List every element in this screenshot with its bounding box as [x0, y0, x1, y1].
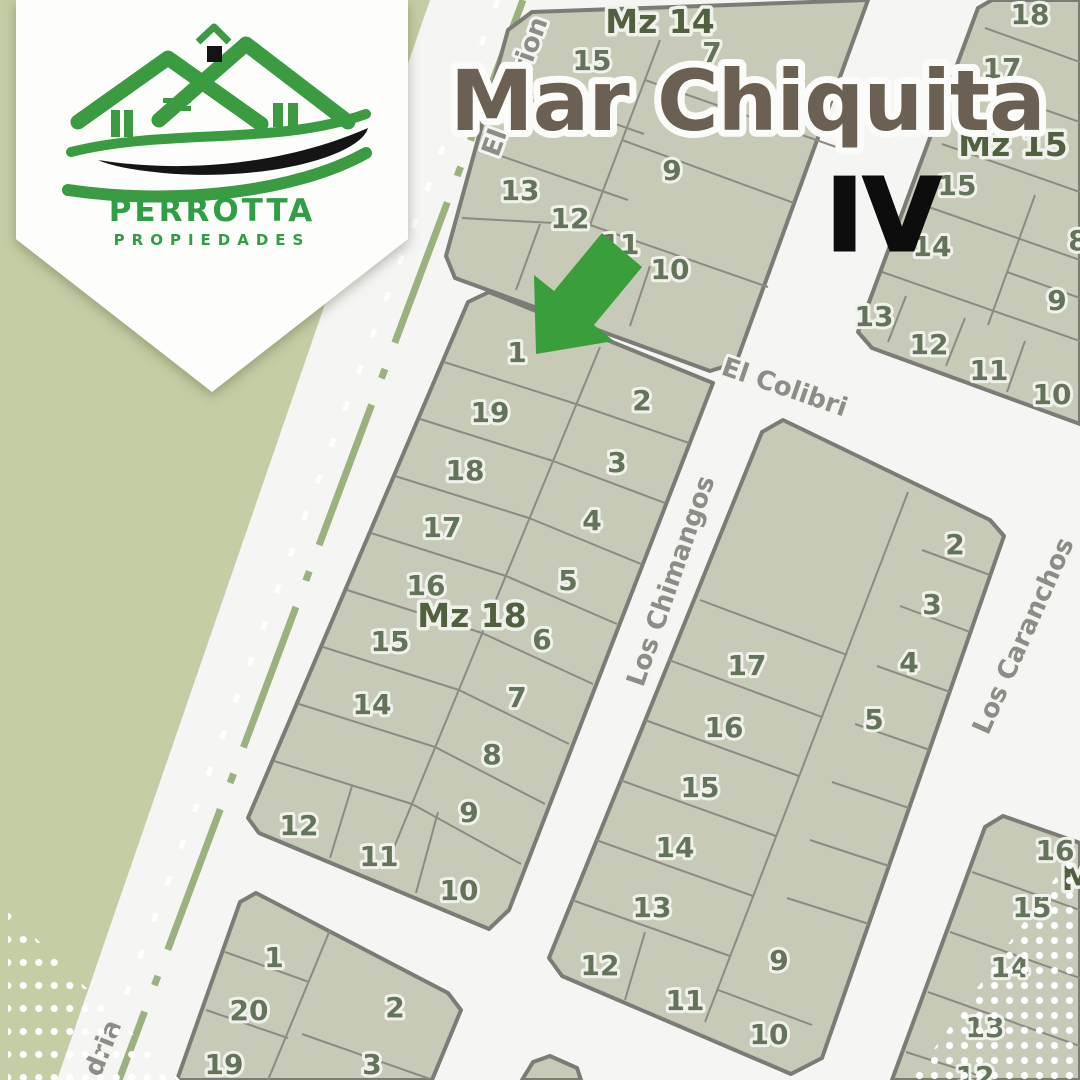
block-label: Mz 14 — [605, 2, 714, 41]
lot-number: 13 — [855, 300, 894, 333]
lot-number: 13 — [501, 174, 540, 207]
lot-number: 17 — [728, 649, 767, 682]
lot-number: 2 — [945, 528, 964, 561]
lot-number: 4 — [582, 504, 601, 537]
lot-number: 10 — [750, 1018, 789, 1051]
lot-number: 15 — [1013, 891, 1052, 924]
lot-number: 8 — [1068, 224, 1080, 257]
lot-number: 9 — [662, 154, 681, 187]
lot-number: 9 — [769, 944, 788, 977]
brand-tagline: PROPIEDADES — [16, 231, 408, 249]
lot-number: 10 — [1033, 378, 1072, 411]
lot-number: 19 — [205, 1048, 244, 1080]
lot-number: 6 — [532, 623, 551, 656]
lot-number: 3 — [922, 588, 941, 621]
lot-number: 3 — [607, 446, 626, 479]
block-label: M — [1062, 859, 1080, 898]
lot-number: 12 — [910, 328, 949, 361]
street-name-el-colibri: El Colibri — [718, 352, 851, 423]
lot-number: 15 — [938, 169, 977, 202]
lot-number: 12 — [551, 202, 590, 235]
lot-number: 12 — [280, 809, 319, 842]
lot-number: 3 — [362, 1048, 381, 1080]
lot-number: 13 — [966, 1011, 1005, 1044]
lot-number: 10 — [440, 874, 479, 907]
lot-number: 4 — [899, 646, 918, 679]
lot-number: 11 — [360, 840, 399, 873]
lot-number: 18 — [1011, 0, 1050, 31]
lot-number: 11 — [970, 354, 1009, 387]
stage-number: IV — [826, 157, 941, 274]
real-estate-map-flyer: 15 7 9 13 12 11 10 Mz 14 18 17 15 14 8 9… — [0, 0, 1080, 1080]
logo-banner: PERROTTA PROPIEDADES — [16, 0, 408, 392]
lot-number: 7 — [507, 681, 526, 714]
lot-number: 12 — [581, 949, 620, 982]
lot-number: 15 — [371, 625, 410, 658]
lot-number: 8 — [482, 738, 501, 771]
lot-number: 16 — [705, 711, 744, 744]
lot-number: 14 — [353, 688, 392, 721]
lot-number: 2 — [385, 991, 404, 1024]
lot-number: 2 — [632, 384, 651, 417]
lot-number: 5 — [864, 703, 883, 736]
block-corner-fragment — [522, 1056, 581, 1080]
map-title: Mar Chiquita — [450, 52, 1045, 150]
lot-number: 5 — [558, 564, 577, 597]
lot-number: 1 — [264, 941, 283, 974]
lot-number: 9 — [459, 796, 478, 829]
lot-number: 1 — [507, 336, 526, 369]
lot-number: 11 — [666, 984, 705, 1017]
lot-number: 17 — [423, 511, 462, 544]
lot-number: 10 — [651, 253, 690, 286]
lot-number: 20 — [230, 994, 269, 1027]
lot-number: 9 — [1047, 284, 1066, 317]
block-label: Mz 18 — [417, 596, 526, 635]
logo-banner-shape: PERROTTA PROPIEDADES — [16, 0, 408, 392]
lot-number: 14 — [656, 831, 695, 864]
lot-number: 12 — [956, 1060, 995, 1080]
lot-number: 13 — [633, 891, 672, 924]
brand-name: PERROTTA — [16, 193, 408, 229]
lot-number: 18 — [446, 454, 485, 487]
lot-number: 14 — [991, 951, 1030, 984]
lot-number: 15 — [681, 771, 720, 804]
lot-number: 19 — [471, 396, 510, 429]
